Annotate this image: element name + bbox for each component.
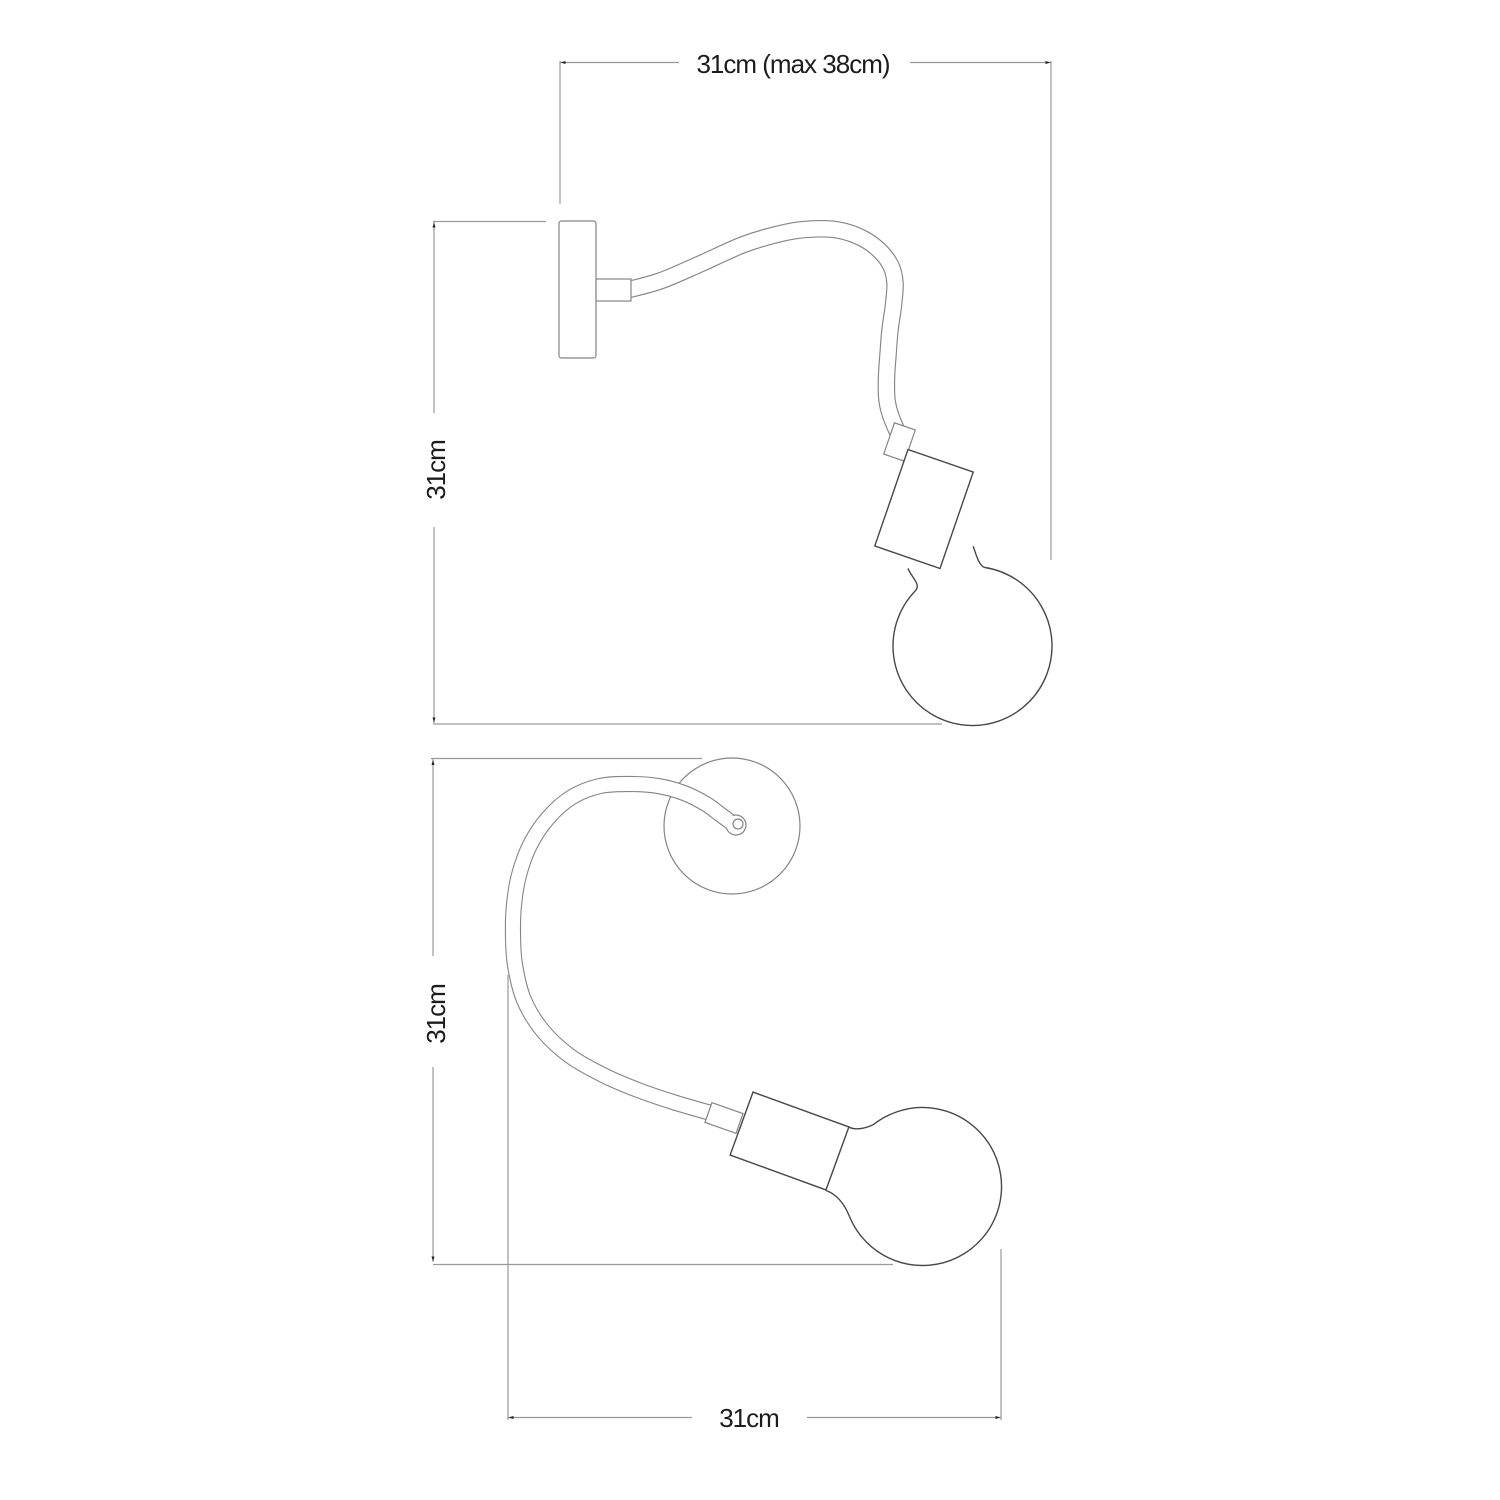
svg-text:31cm (max 38cm): 31cm (max 38cm) [696, 49, 889, 79]
svg-text:31cm: 31cm [421, 440, 451, 500]
svg-text:31cm: 31cm [719, 1403, 779, 1433]
svg-text:31cm: 31cm [421, 984, 451, 1044]
